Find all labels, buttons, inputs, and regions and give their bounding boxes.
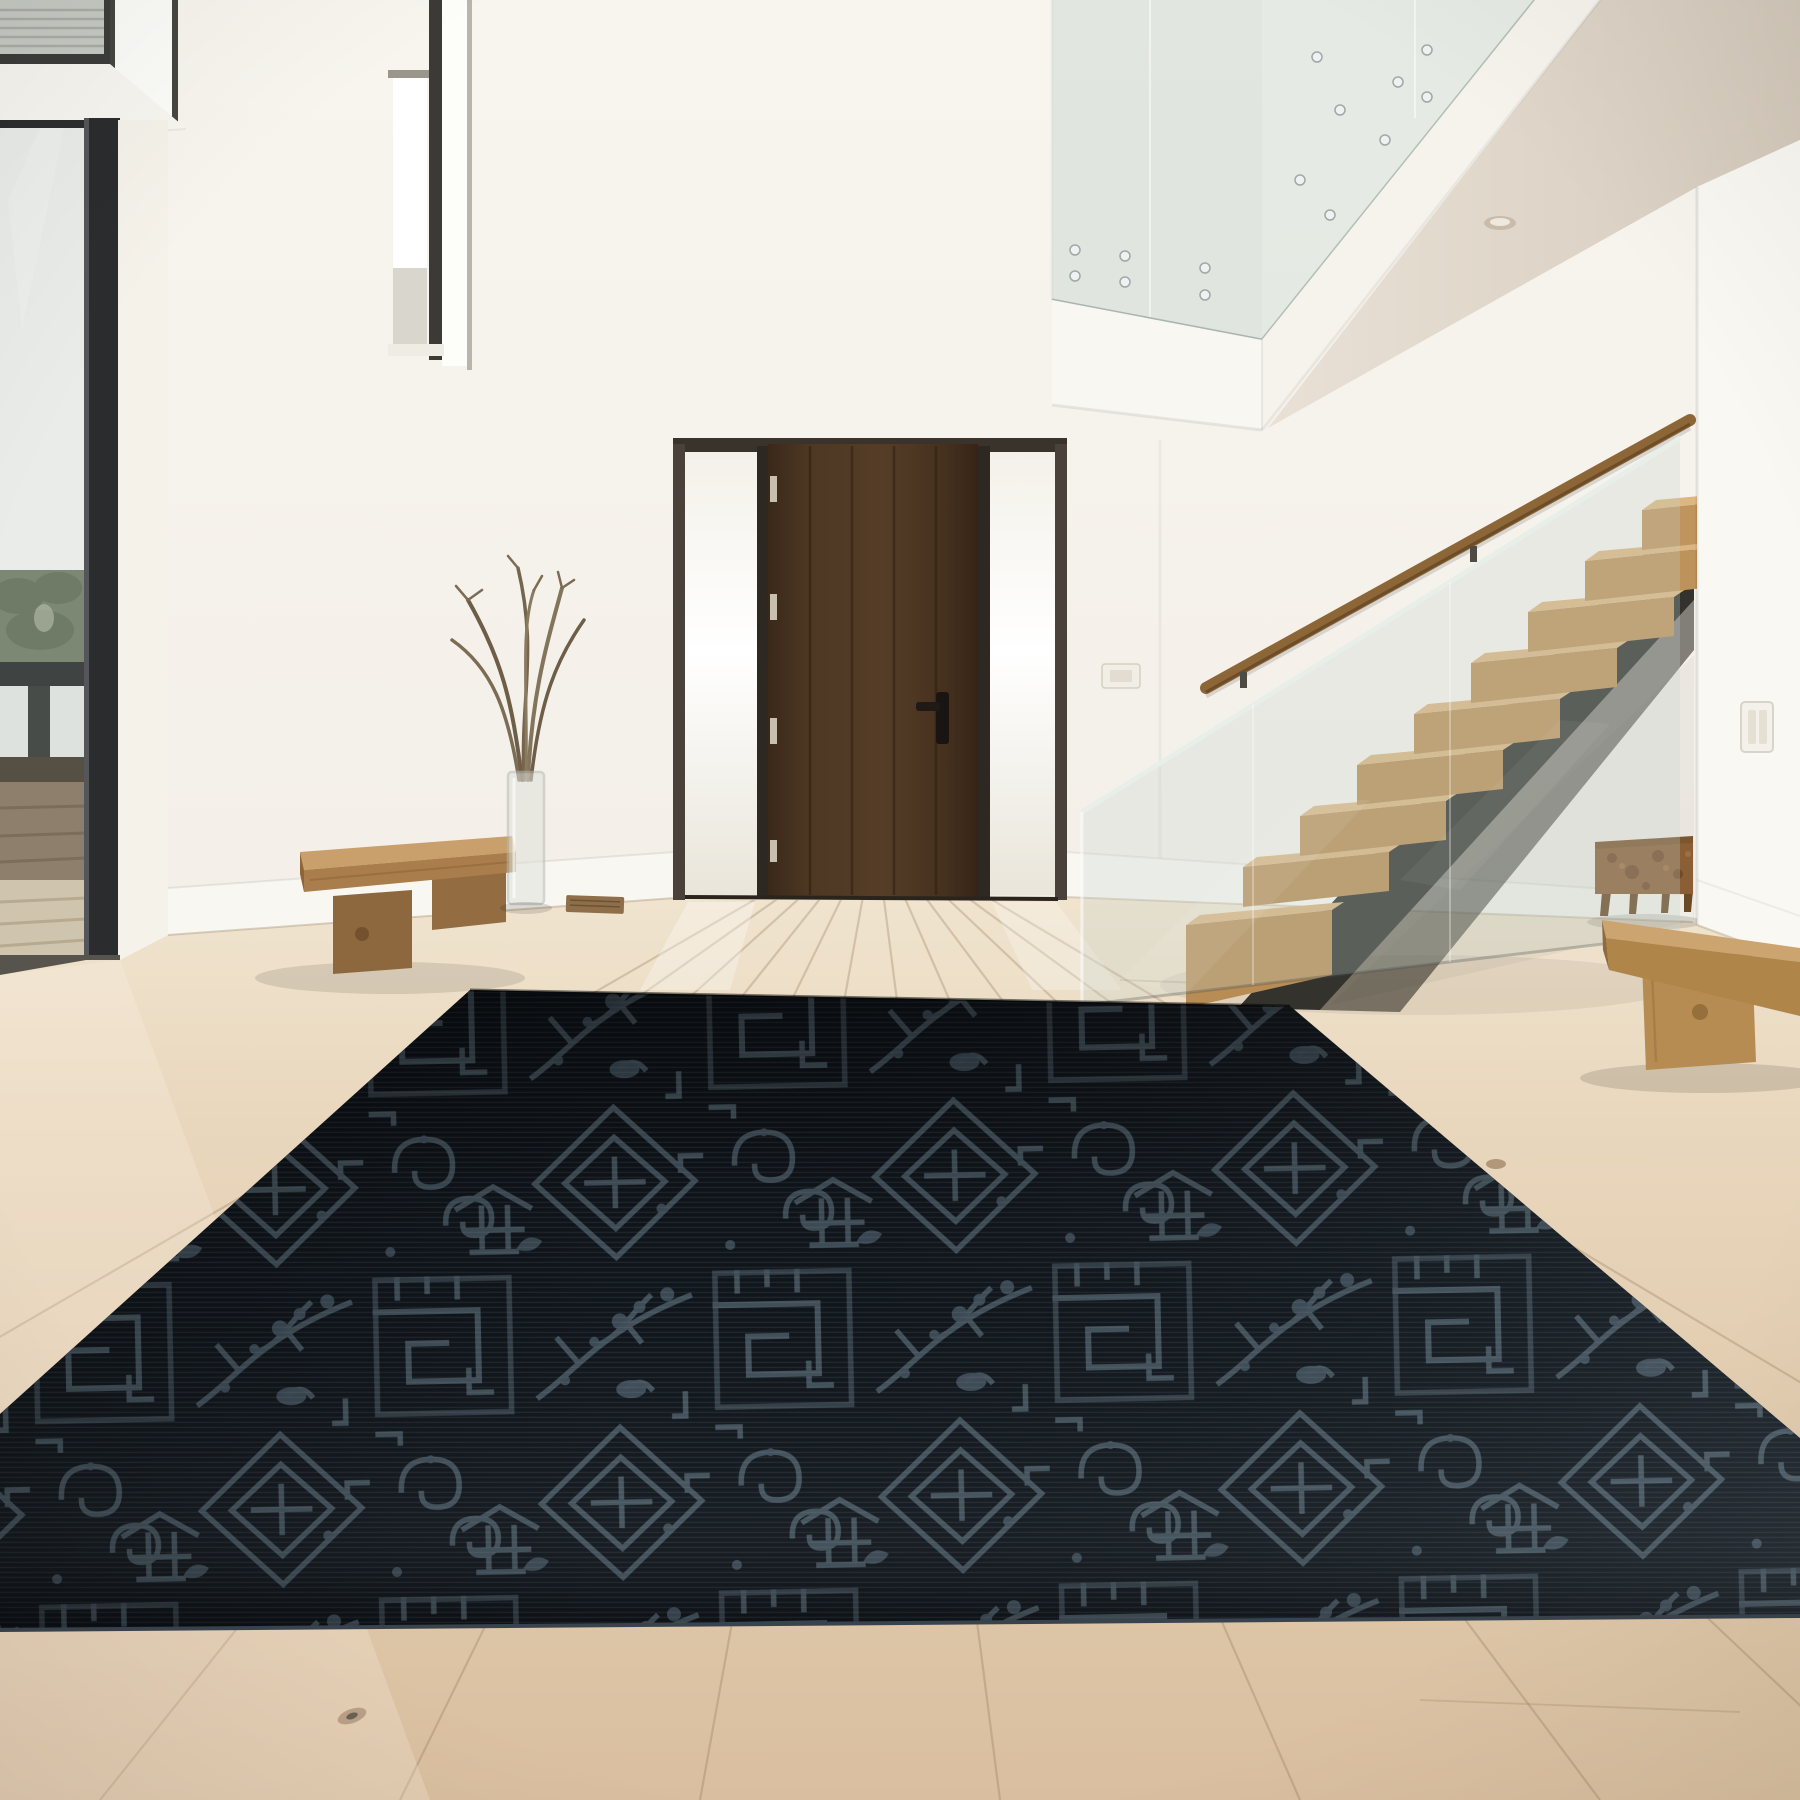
photo-vignette — [0, 0, 1800, 1800]
entry-hall-photo — [0, 0, 1800, 1800]
scene-canvas — [0, 0, 1800, 1800]
